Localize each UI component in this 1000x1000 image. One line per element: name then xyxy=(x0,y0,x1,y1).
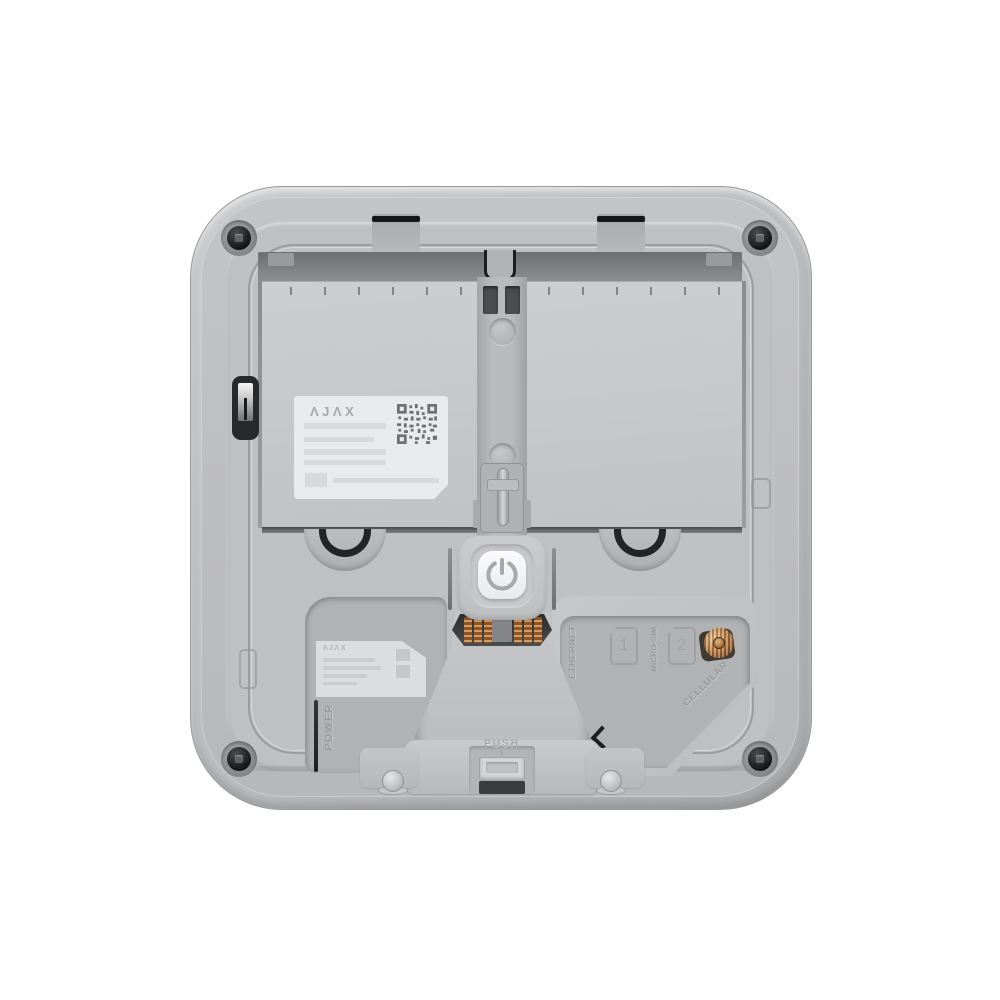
power-label: POWER xyxy=(323,703,335,750)
contact-board xyxy=(492,618,512,642)
micro-sim-label: MICRO-SIM xyxy=(650,626,659,671)
qr-code-icon xyxy=(397,404,437,444)
release-latch xyxy=(479,757,525,781)
sticker-text-line xyxy=(304,423,386,429)
plate-tick xyxy=(290,287,292,295)
latch-hole xyxy=(479,781,525,794)
plate-tick xyxy=(548,287,550,295)
housing-seam-right xyxy=(552,548,556,610)
contact-coil xyxy=(464,617,472,643)
battery-plate-right xyxy=(524,281,742,529)
corner-screw-top-left xyxy=(221,220,257,256)
plate-tick xyxy=(392,287,394,295)
screw-drive xyxy=(756,234,764,242)
rail-circle-top xyxy=(489,318,516,345)
plate-tick xyxy=(582,287,584,295)
sim-slot-2-number: 2 xyxy=(678,637,687,655)
sma-connector-pin xyxy=(713,637,725,649)
sim-slot-1-number: 1 xyxy=(620,637,629,655)
slider-bar xyxy=(487,479,519,491)
sticker-text-line xyxy=(304,449,386,455)
contact-coil xyxy=(524,617,532,643)
small-sticker-square xyxy=(396,649,410,661)
tamper-slot xyxy=(232,376,259,440)
contact-coil xyxy=(474,617,482,643)
plate-tick xyxy=(616,287,618,295)
small-sticker-square xyxy=(396,665,410,678)
sim-slot-2: 2 xyxy=(668,627,696,665)
band-clip-right xyxy=(706,253,732,266)
plate-tick xyxy=(358,287,360,295)
rail-hole-right xyxy=(505,286,520,314)
frame-notch-left xyxy=(239,649,257,689)
corner-screw-top-right xyxy=(742,220,778,256)
frame-notch-right xyxy=(751,478,771,509)
thumbscrew-left xyxy=(382,770,404,792)
small-sticker-line xyxy=(323,666,381,670)
corner-screw-bottom-left xyxy=(221,741,257,777)
small-sticker-line xyxy=(323,682,357,685)
power-button xyxy=(478,551,526,599)
latch-window xyxy=(486,762,518,773)
contact-coil xyxy=(514,617,522,643)
tamper-pin xyxy=(244,398,247,420)
slider-channel xyxy=(497,468,509,526)
small-sticker-line xyxy=(323,658,375,662)
small-sticker: ΛJΛX xyxy=(316,641,426,697)
plate-tick xyxy=(684,287,686,295)
mounting-hole-right xyxy=(597,216,645,222)
plate-gap-right xyxy=(742,281,746,528)
housing-seam-left xyxy=(448,548,452,610)
mounting-hole-left xyxy=(372,216,420,222)
sim-slot-1: 1 xyxy=(610,627,638,665)
plate-tick xyxy=(426,287,428,295)
product-photo: ΛJΛX xyxy=(0,0,1000,1000)
plate-tick xyxy=(460,287,462,295)
ajax-logo: ΛJΛX xyxy=(310,404,357,419)
plate-tick xyxy=(324,287,326,295)
screw-drive xyxy=(756,755,764,763)
plate-tick xyxy=(650,287,652,295)
ajax-logo-small: ΛJΛX xyxy=(323,645,347,652)
contact-coil xyxy=(484,617,492,643)
slider-housing xyxy=(480,463,524,533)
band-clip-left xyxy=(268,253,294,266)
corner-screw-bottom-right xyxy=(742,741,778,777)
screw-drive xyxy=(235,755,243,763)
rail-hole-left xyxy=(483,286,498,314)
plate-tick xyxy=(718,287,720,295)
power-cable-slot xyxy=(314,700,318,772)
ethernet-label: ETHERNET xyxy=(567,625,577,679)
sticker-code-block xyxy=(305,473,327,487)
sticker-text-line xyxy=(304,460,386,465)
contact-coil xyxy=(534,617,542,643)
small-sticker-line xyxy=(323,674,367,678)
screw-drive xyxy=(235,234,243,242)
sticker-text-line xyxy=(333,478,439,483)
info-sticker: ΛJΛX xyxy=(294,396,448,499)
thumbscrew-right xyxy=(600,770,622,792)
power-icon xyxy=(478,551,526,599)
sticker-text-line xyxy=(304,437,374,442)
